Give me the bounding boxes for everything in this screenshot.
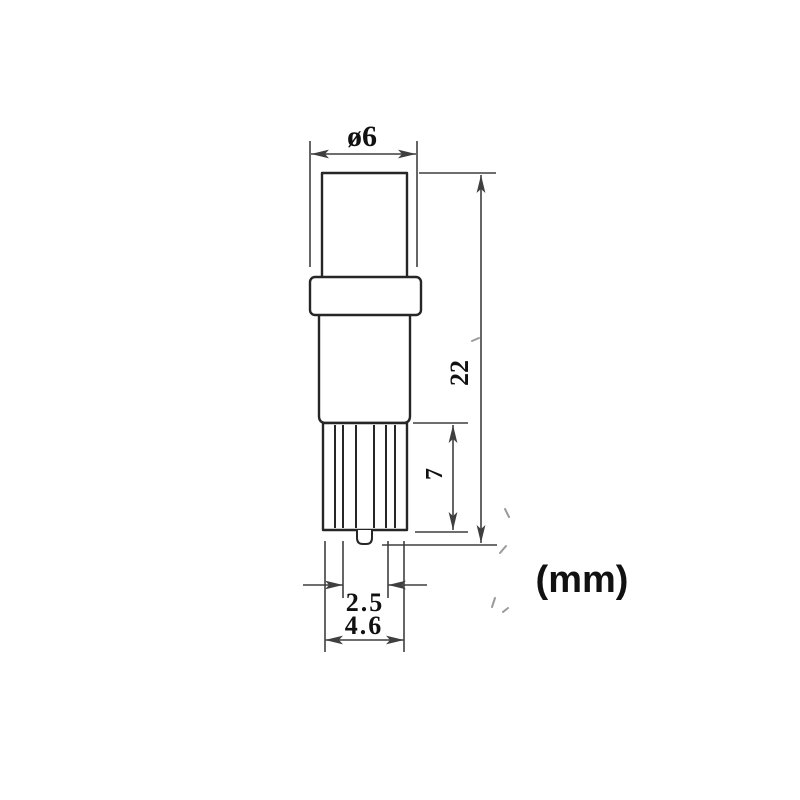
bulb-body bbox=[319, 314, 410, 423]
bulb-collar bbox=[310, 277, 421, 315]
dim-contact-thickness: 2.5 bbox=[303, 541, 427, 617]
scan-artifacts bbox=[472, 338, 509, 612]
label-top-diameter: ø6 bbox=[347, 120, 377, 153]
bulb-cap bbox=[322, 173, 407, 279]
led-bulb-dimension-diagram: ø6 22 7 2.5 4.6 (mm) bbox=[0, 0, 800, 800]
label-base-height: 7 bbox=[422, 468, 448, 480]
label-overall-height: 22 bbox=[445, 360, 474, 386]
dim-base-height: 7 bbox=[413, 423, 468, 532]
label-base-width: 4.6 bbox=[345, 611, 384, 640]
bottom-contact-nub bbox=[357, 530, 372, 544]
bulb-outline bbox=[310, 173, 421, 544]
units-label: (mm) bbox=[536, 559, 629, 601]
